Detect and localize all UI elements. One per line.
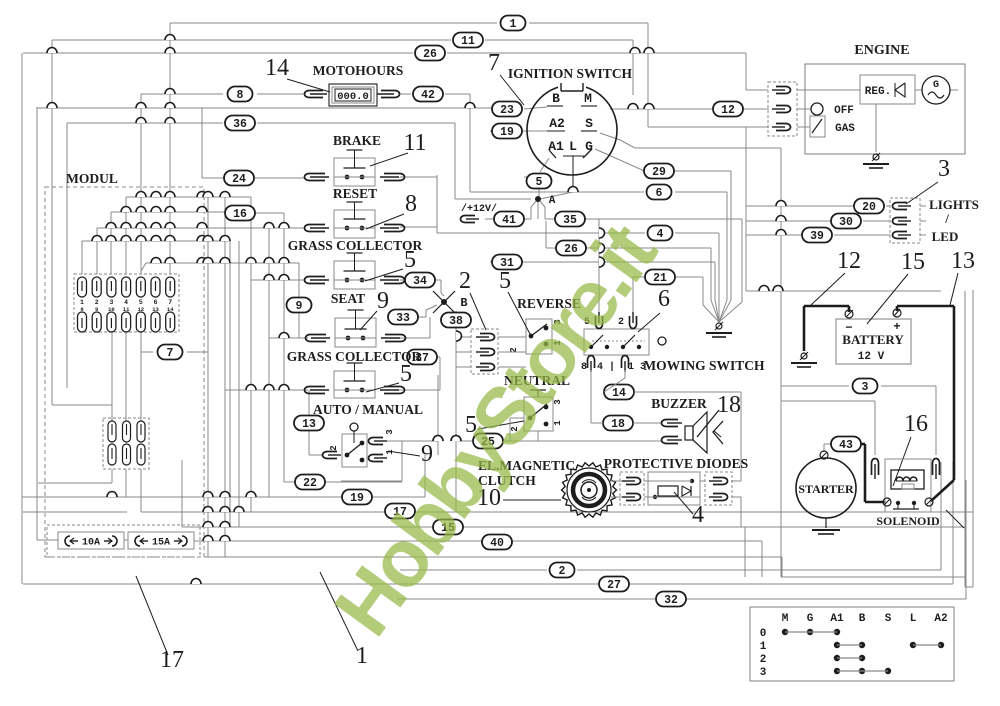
- svg-text:5: 5: [499, 268, 511, 294]
- svg-text:12: 12: [137, 306, 144, 313]
- svg-text:10: 10: [108, 306, 115, 313]
- svg-text:7: 7: [488, 50, 500, 76]
- svg-text:17: 17: [160, 647, 184, 673]
- svg-text:L: L: [569, 139, 577, 154]
- svg-text:9: 9: [377, 288, 389, 314]
- svg-text:4: 4: [692, 502, 704, 528]
- svg-text:16: 16: [233, 208, 247, 221]
- svg-text:40: 40: [490, 537, 504, 550]
- svg-text:1: 1: [356, 643, 368, 669]
- svg-text:MOTOHOURS: MOTOHOURS: [313, 63, 404, 78]
- svg-text:18: 18: [611, 418, 625, 431]
- svg-text:9: 9: [95, 306, 98, 313]
- svg-text:9: 9: [296, 300, 303, 313]
- svg-text:12: 12: [837, 248, 861, 274]
- svg-text:29: 29: [652, 166, 666, 179]
- svg-text:30: 30: [839, 216, 853, 229]
- svg-text:13: 13: [152, 306, 159, 313]
- svg-text:B: B: [859, 613, 866, 625]
- svg-text:5: 5: [536, 176, 543, 189]
- svg-text:LIGHTS: LIGHTS: [929, 197, 979, 212]
- svg-text:15A: 15A: [152, 538, 170, 549]
- svg-text:14: 14: [167, 306, 174, 313]
- svg-text:AUTO / MANUAL: AUTO / MANUAL: [313, 402, 423, 417]
- svg-text:S: S: [885, 613, 892, 625]
- svg-text:RESET: RESET: [333, 186, 377, 201]
- svg-text:1: 1: [760, 641, 767, 653]
- svg-text:1: 1: [510, 18, 517, 31]
- svg-text:6: 6: [658, 286, 670, 312]
- svg-text:35: 35: [563, 214, 577, 227]
- svg-text:2: 2: [559, 565, 566, 578]
- svg-text:B: B: [460, 296, 467, 310]
- svg-text:S: S: [585, 116, 593, 131]
- svg-text:000.0: 000.0: [337, 91, 369, 103]
- svg-text:A1: A1: [830, 613, 844, 625]
- svg-text:/: /: [944, 211, 949, 226]
- svg-text:13: 13: [951, 248, 975, 274]
- svg-text:|: |: [609, 361, 615, 373]
- svg-text:42: 42: [421, 89, 435, 102]
- svg-text:7: 7: [167, 347, 174, 360]
- svg-text:18: 18: [717, 392, 741, 418]
- svg-text:5: 5: [400, 361, 412, 387]
- svg-text:G: G: [807, 613, 814, 625]
- svg-text:3: 3: [760, 667, 767, 679]
- svg-text:5: 5: [139, 299, 143, 306]
- svg-text:0: 0: [760, 628, 767, 640]
- svg-text:34: 34: [413, 275, 427, 288]
- svg-text:12 V: 12 V: [858, 351, 885, 363]
- svg-text:M: M: [782, 613, 789, 625]
- svg-text:36: 36: [233, 118, 247, 131]
- svg-text:8: 8: [405, 191, 417, 217]
- svg-text:A: A: [549, 195, 556, 207]
- svg-text:STARTER: STARTER: [798, 482, 854, 496]
- svg-text:6: 6: [154, 299, 158, 306]
- svg-text:7: 7: [168, 299, 172, 306]
- svg-text:20: 20: [862, 201, 876, 214]
- svg-text:G: G: [933, 80, 939, 91]
- svg-text:SEAT: SEAT: [331, 291, 365, 306]
- svg-text:MODUL: MODUL: [66, 171, 118, 186]
- svg-text:2: 2: [459, 268, 471, 294]
- svg-text:33: 33: [396, 312, 410, 325]
- svg-text:12: 12: [721, 104, 735, 117]
- svg-text:38: 38: [449, 315, 463, 328]
- svg-text:23: 23: [500, 104, 514, 117]
- svg-text:8: 8: [237, 89, 244, 102]
- svg-text:6: 6: [656, 187, 663, 200]
- svg-text:14: 14: [265, 55, 289, 81]
- svg-text:OFF: OFF: [834, 105, 854, 117]
- svg-text:2: 2: [95, 299, 99, 306]
- svg-text:3: 3: [385, 429, 395, 434]
- svg-text:11: 11: [461, 35, 475, 48]
- svg-text:GRASS COLLECTOR: GRASS COLLECTOR: [288, 238, 423, 253]
- svg-text:3: 3: [109, 299, 113, 306]
- svg-text:3: 3: [862, 381, 869, 394]
- svg-text:13: 13: [302, 418, 316, 431]
- svg-text:26: 26: [423, 48, 437, 61]
- svg-text:22: 22: [303, 477, 317, 490]
- svg-text:M: M: [584, 91, 592, 106]
- svg-text:16: 16: [904, 411, 928, 437]
- svg-text:A2: A2: [934, 613, 947, 625]
- svg-text:10A: 10A: [82, 538, 100, 549]
- svg-text:2: 2: [329, 445, 339, 450]
- svg-text:A2: A2: [549, 116, 565, 131]
- svg-text:GAS: GAS: [835, 123, 855, 135]
- svg-text:14: 14: [612, 387, 626, 400]
- svg-text:11: 11: [403, 130, 426, 156]
- svg-text:ENGINE: ENGINE: [854, 43, 909, 58]
- svg-text:39: 39: [810, 230, 824, 243]
- svg-text:15: 15: [901, 249, 925, 275]
- svg-text:2: 2: [760, 654, 767, 666]
- svg-text:11: 11: [123, 306, 130, 313]
- svg-text:MOWING SWITCH: MOWING SWITCH: [643, 358, 765, 373]
- svg-text:1: 1: [80, 299, 84, 306]
- svg-text:SOLENOID: SOLENOID: [876, 514, 940, 528]
- svg-text:32: 32: [664, 594, 678, 607]
- svg-text:+: +: [893, 320, 900, 334]
- svg-text:BUZZER: BUZZER: [651, 396, 707, 411]
- svg-text:LED: LED: [932, 229, 959, 244]
- svg-text:19: 19: [500, 126, 514, 139]
- svg-text:B: B: [552, 91, 560, 106]
- svg-text:4: 4: [124, 299, 128, 306]
- svg-text:IGNITION SWITCH: IGNITION SWITCH: [508, 66, 633, 81]
- svg-text:PROTECTIVE DIODES: PROTECTIVE DIODES: [604, 456, 748, 471]
- svg-text:/+12V/: /+12V/: [461, 203, 497, 215]
- svg-text:BRAKE: BRAKE: [333, 133, 381, 148]
- svg-text:REG.: REG.: [865, 86, 891, 98]
- svg-text:43: 43: [839, 439, 853, 452]
- svg-text:19: 19: [350, 492, 364, 505]
- svg-text:4: 4: [657, 228, 664, 241]
- svg-text:1: 1: [628, 362, 634, 373]
- svg-text:27: 27: [607, 579, 621, 592]
- svg-text:3: 3: [938, 156, 950, 182]
- svg-text:3: 3: [640, 362, 646, 373]
- svg-text:5: 5: [404, 247, 416, 273]
- svg-text:41: 41: [502, 214, 516, 227]
- svg-text:24: 24: [232, 173, 246, 186]
- svg-text:−: −: [845, 321, 852, 335]
- svg-text:L: L: [910, 613, 917, 625]
